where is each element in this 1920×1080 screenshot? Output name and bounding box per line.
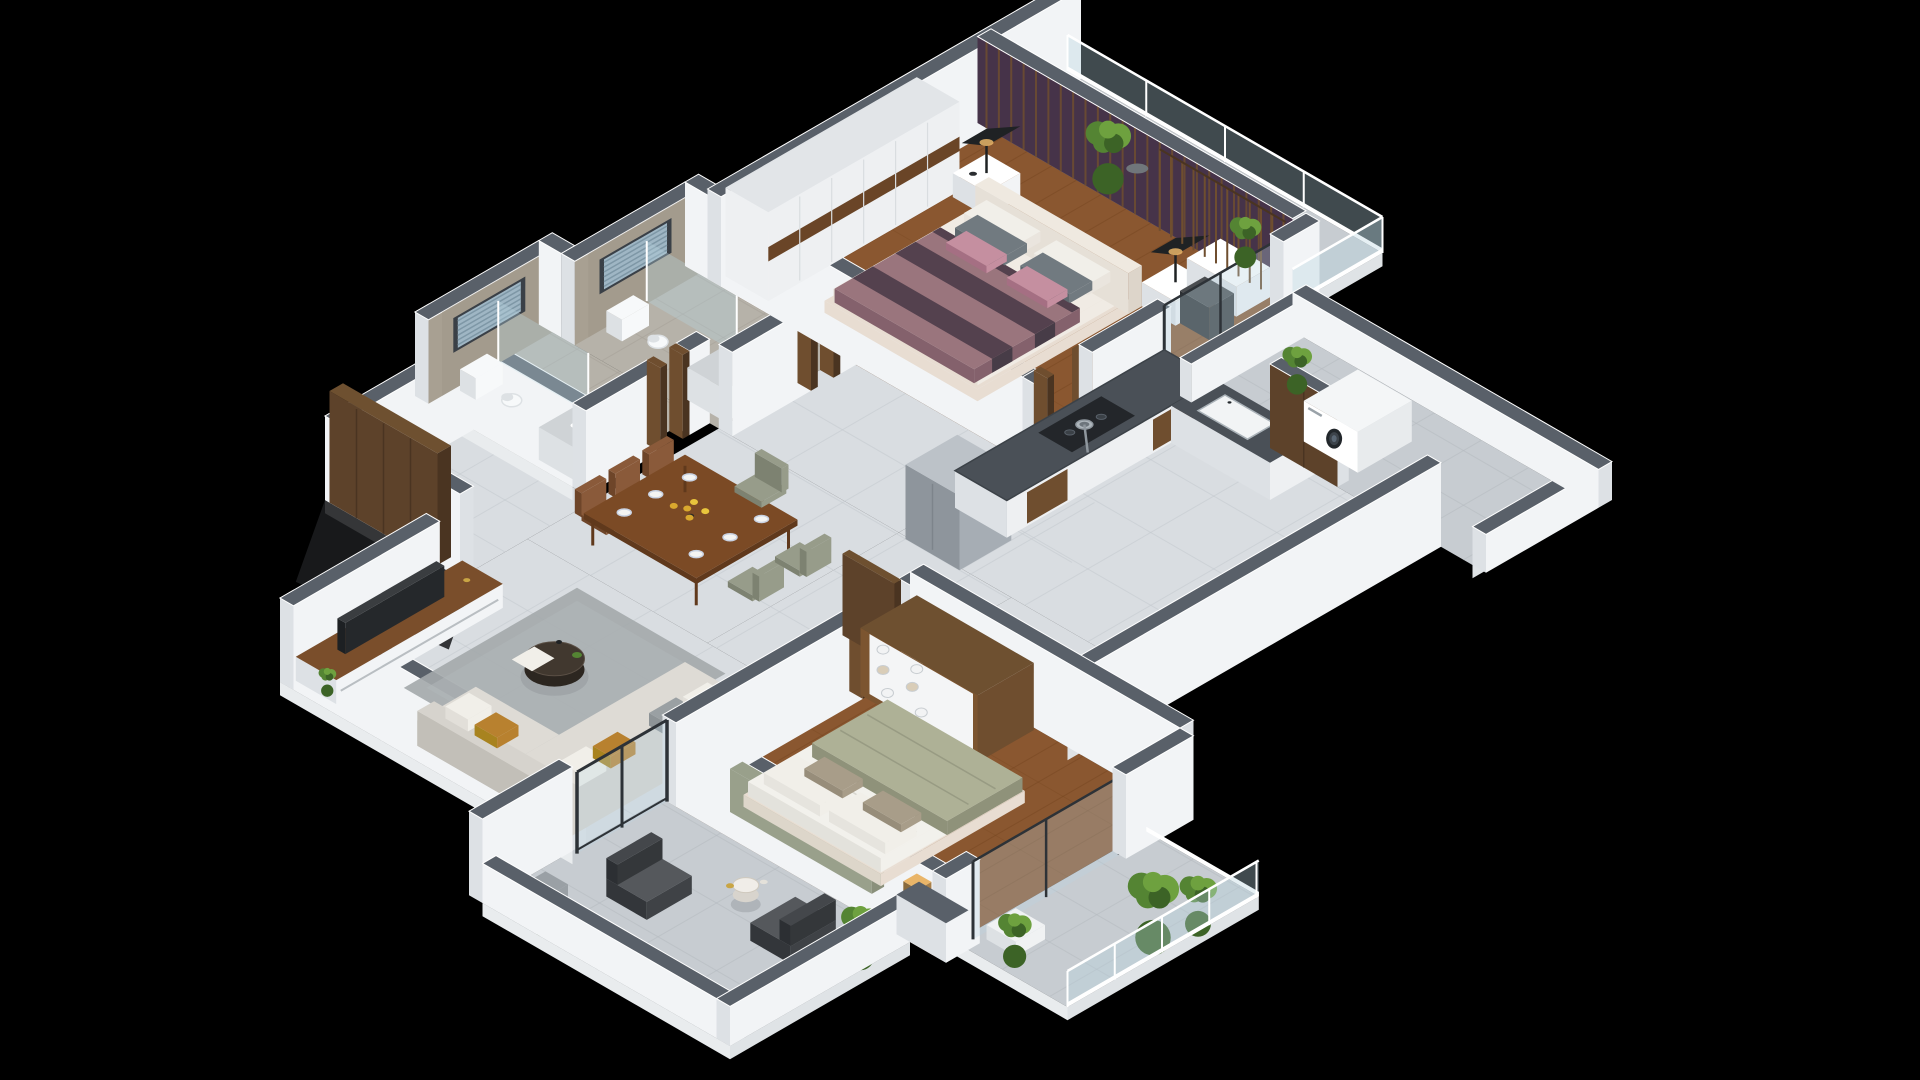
balcony-plant [1234,246,1256,268]
decor-vase [463,578,470,582]
wall [415,312,429,404]
wall [573,403,587,495]
plate [649,491,663,498]
wall [561,254,575,346]
headboard [1128,266,1142,315]
wall [539,241,562,338]
wall [280,598,294,690]
utility-plant [1291,346,1303,358]
basket [906,682,918,691]
towel-roll [911,665,923,674]
apartment-3d-floor-plan [0,0,1920,1080]
television [337,618,345,654]
utility-plant [1287,374,1307,394]
yellow-flowers [686,515,694,521]
plate [723,534,737,541]
round-side-table [733,878,759,893]
door-jamb [669,347,683,439]
yellow-flowers [683,506,691,512]
balcony-plant [1099,121,1117,139]
balcony-plant [1092,163,1123,194]
dining-chair [642,450,649,478]
plate [689,551,703,558]
yellow-flowers [670,503,678,509]
plate [683,474,697,481]
plate [755,516,769,523]
dining-chair [609,470,616,498]
plate [617,509,631,516]
yellow-flowers [701,508,709,514]
balcony-plant [1143,872,1163,892]
wall [1180,358,1191,403]
wall [469,811,483,903]
decor-plant [321,685,333,697]
basket [877,666,889,675]
plant-pot [1126,164,1148,174]
towel-roll [877,645,889,654]
wall [719,345,733,437]
towel-roll [882,689,894,698]
balcony-plant [1008,913,1021,926]
balcony-plant [1003,945,1026,968]
balcony-plant [1191,876,1206,891]
yellow-flowers [690,499,698,505]
balcony-plant [1239,217,1251,229]
decor-plant [324,668,331,675]
door-jamb [647,360,661,452]
isometric-apartment-svg [0,0,1920,1080]
dining-chair [575,489,582,517]
towel-roll [915,708,927,717]
wall [708,189,722,287]
wall [1113,767,1127,859]
